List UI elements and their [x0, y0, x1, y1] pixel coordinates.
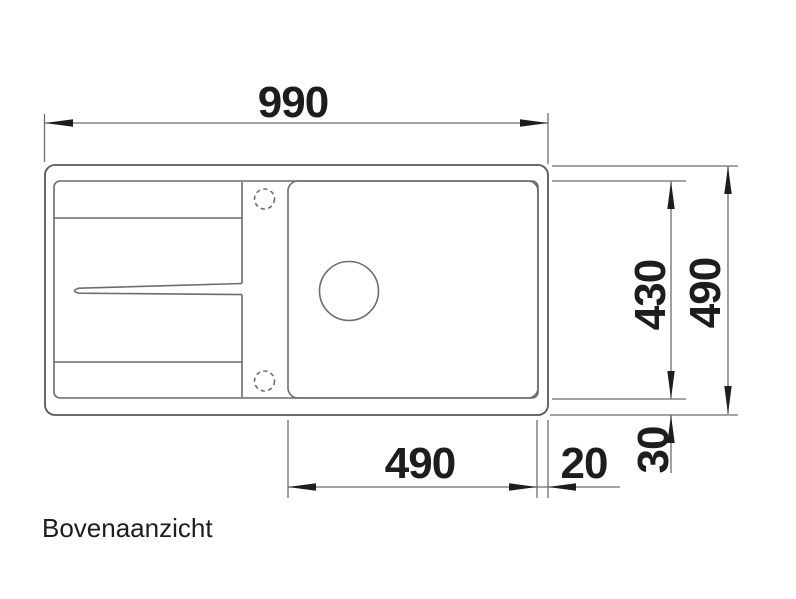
dim-label-rim-right: 20: [561, 439, 608, 488]
arrow-up-icon: [667, 181, 674, 209]
view-label: Bovenaanzicht: [42, 513, 213, 543]
technical-drawing-page: 990 430 490 30: [0, 0, 796, 599]
arrow-right-icon: [509, 483, 537, 490]
bowl: [288, 181, 538, 398]
dim-label-overall-width: 990: [258, 78, 328, 127]
sink-outline: [45, 165, 548, 415]
arrow-left-icon: [45, 119, 73, 126]
arrow-down-icon: [667, 371, 674, 399]
dim-right-group: 430 490 30: [550, 166, 738, 473]
arrow-left-icon: [288, 483, 316, 490]
dim-overall-width: 990: [45, 78, 549, 164]
tap-hole-top: [255, 189, 275, 209]
arrow-down-icon: [724, 386, 731, 414]
sink-inner-rim: [54, 181, 538, 398]
sink-body: [45, 165, 548, 415]
sink-top-view-drawing: 990 430 490 30: [0, 0, 796, 599]
drain-hole: [320, 262, 379, 321]
dim-label-bowl-depth: 430: [626, 260, 675, 330]
arrow-right-icon: [520, 119, 548, 126]
tap-hole-bottom: [255, 371, 275, 391]
dim-label-overall-depth: 490: [681, 258, 730, 328]
dim-label-rim-bottom: 30: [629, 427, 678, 474]
dim-label-bowl-width: 490: [385, 439, 455, 488]
dim-bottom-group: 490 20: [288, 420, 620, 498]
drainboard-groove: [75, 284, 243, 295]
arrow-up-icon: [724, 166, 731, 194]
